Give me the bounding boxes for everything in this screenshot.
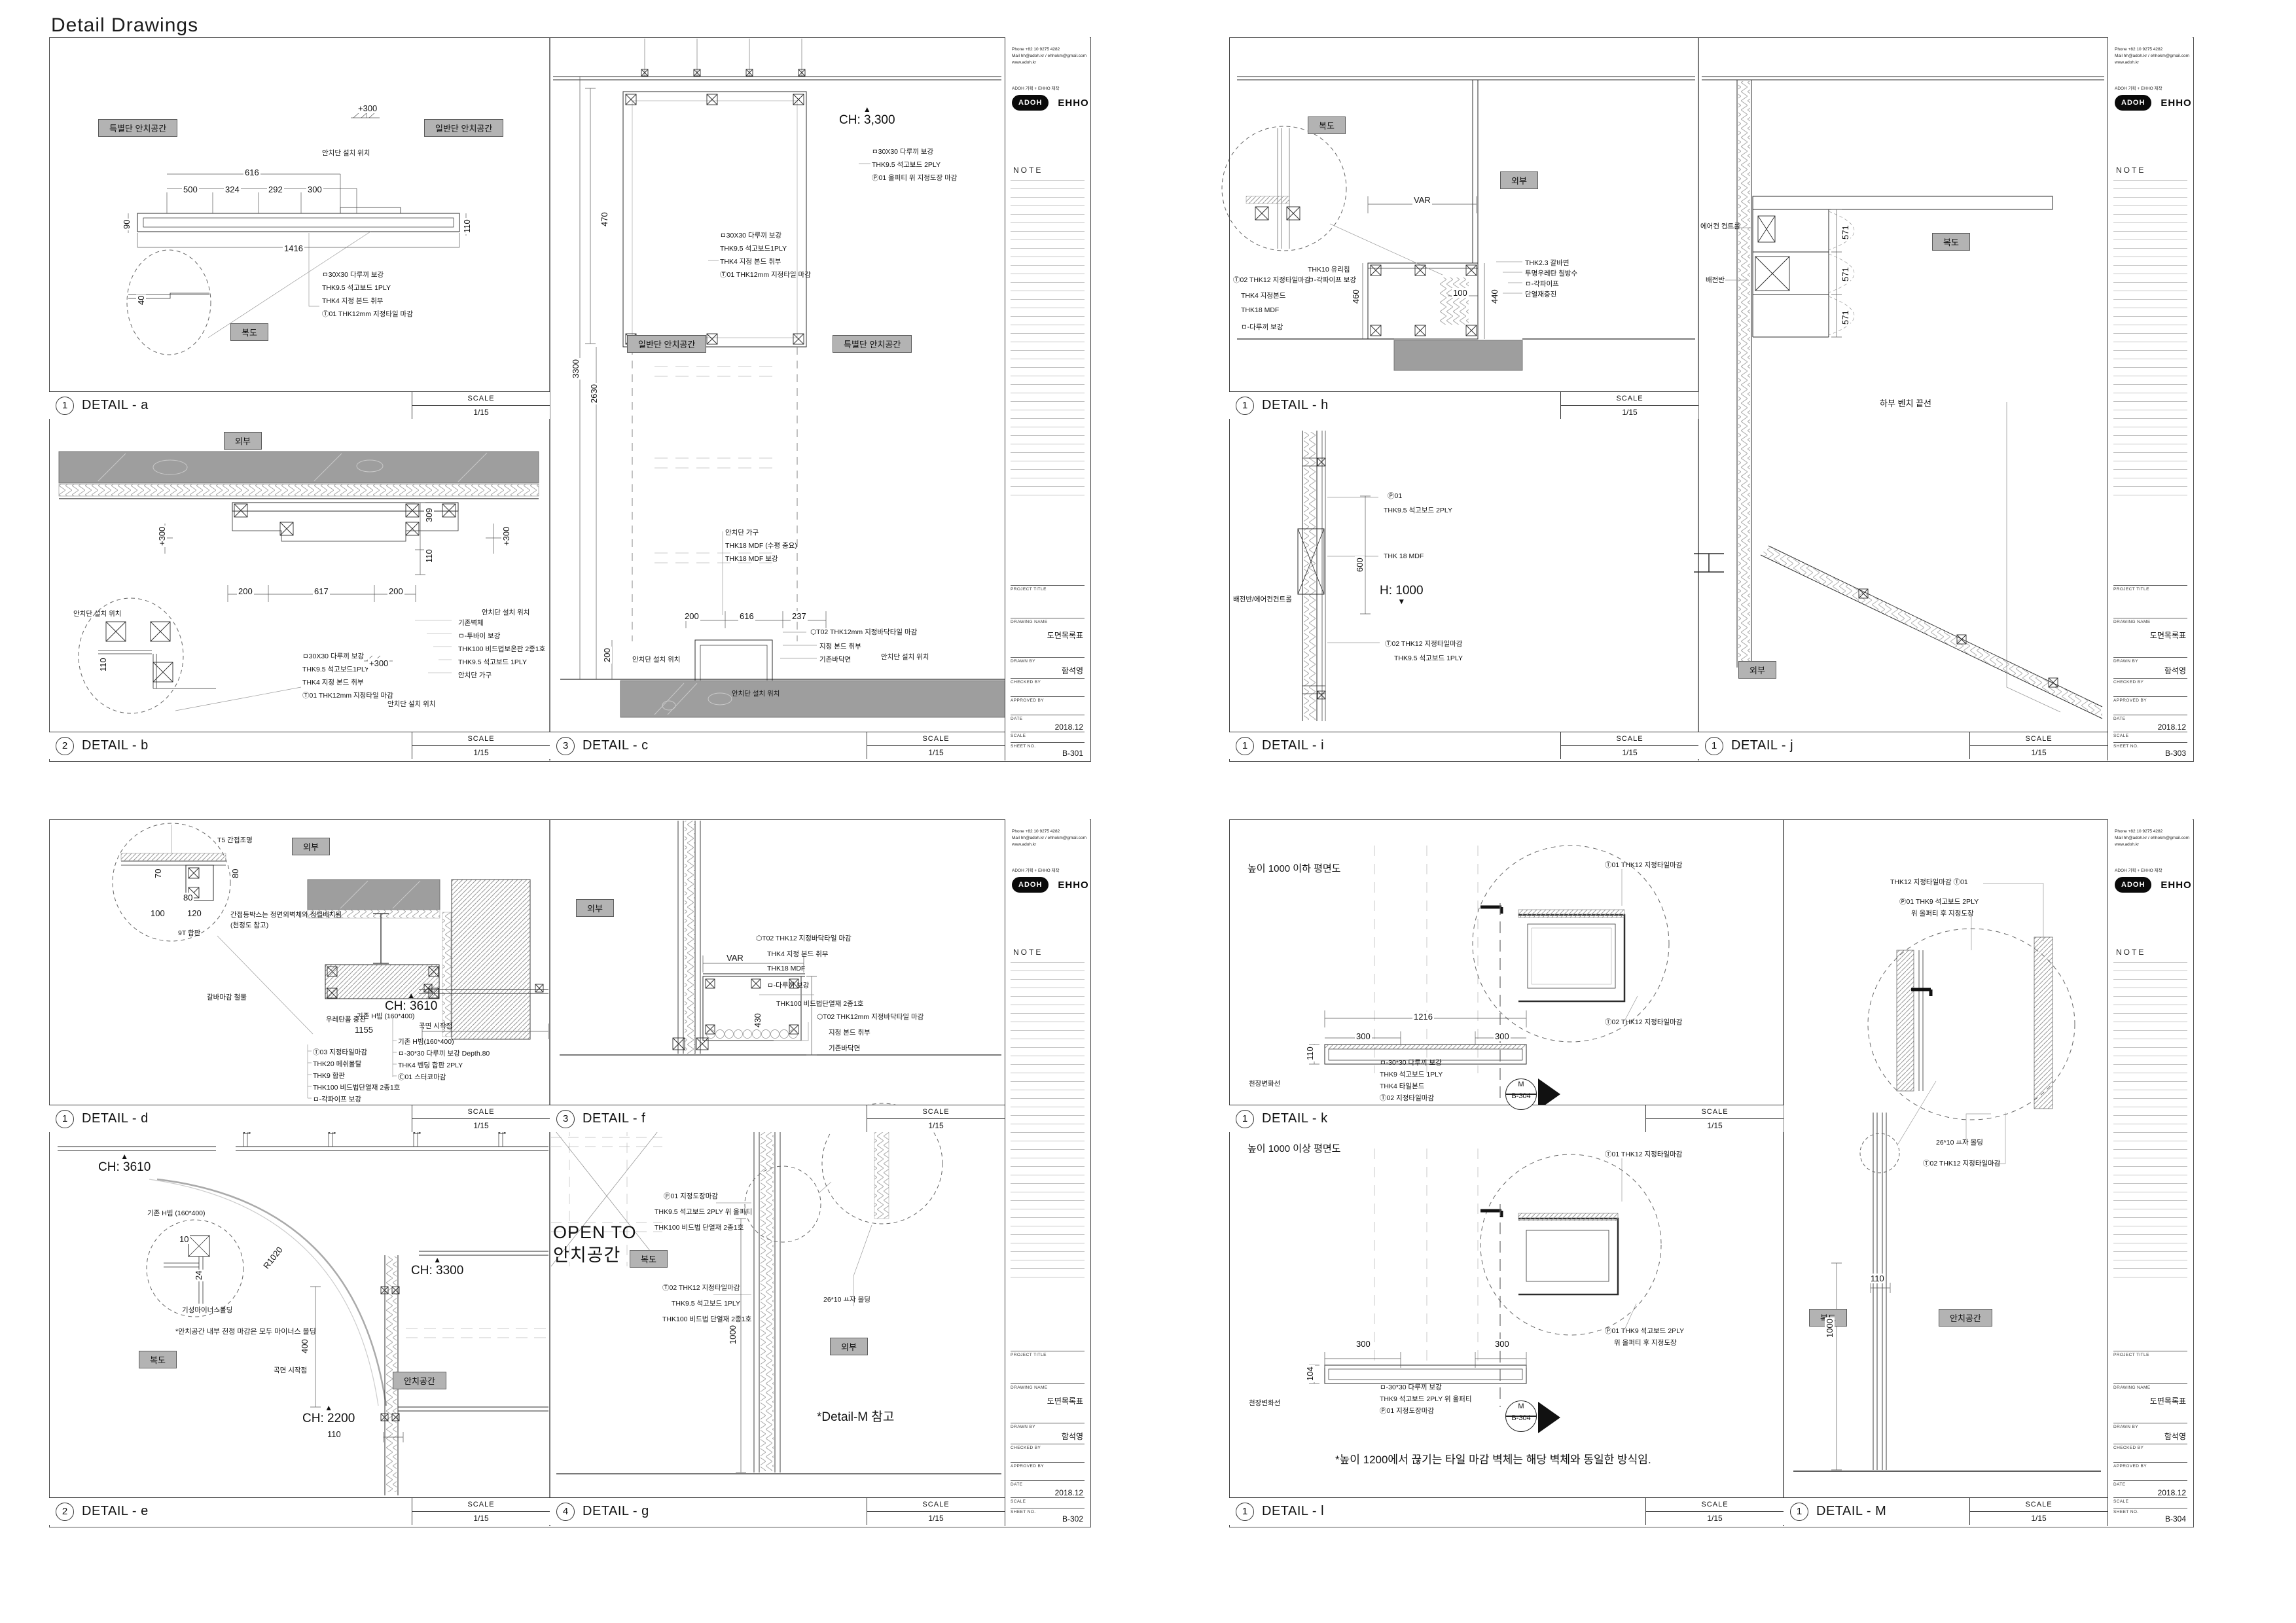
note-rule-line — [2113, 265, 2187, 266]
note-rule-line — [1011, 1217, 1085, 1218]
note-rule-line — [2113, 401, 2187, 402]
scale-label: SCALE — [867, 1498, 1005, 1512]
annotation-dim: 292 — [267, 185, 284, 194]
scale-label: SCALE — [1561, 732, 1698, 746]
annotation-call: ㅁ-각파이프 보강 — [1308, 275, 1356, 285]
detail-scale-box: SCALE1/15 — [412, 732, 550, 759]
annotation-call: Ⓣ02 THK12 지정타일마감 — [1605, 1017, 1682, 1027]
annotation-vdim: 460 — [1351, 288, 1361, 305]
tb-label-sheet_no: SHEET NO. — [2113, 1508, 2187, 1514]
note-rule-line — [1011, 197, 1085, 198]
annotation-ch: CH: 3300 — [411, 1257, 463, 1278]
annotation-call: ⬡T02 THK12 지정바닥타일 마감 — [756, 933, 852, 943]
annotation-chip: 외부 — [1738, 661, 1776, 679]
annotation-call: THK100 비드법 단열재 2종1호 — [655, 1222, 744, 1232]
annotation-chip: 특별단 안치공간 — [98, 119, 177, 137]
note-rule-line — [2113, 214, 2187, 215]
note-rule-line — [1011, 333, 1085, 334]
annotation-call: THK18 MDF — [767, 965, 805, 972]
scale-label: SCALE — [412, 392, 550, 406]
adoh-logo: ADOH — [1012, 877, 1049, 893]
note-rule-line — [2113, 350, 2187, 351]
scale-label: SCALE — [1646, 1498, 1784, 1512]
annotation-call: THK9 합판 — [313, 1071, 345, 1080]
scale-label: SCALE — [412, 732, 550, 746]
note-rule-line — [1011, 962, 1085, 963]
annotation-call: Ⓣ03 지정타일마감 — [313, 1047, 367, 1057]
annotation-vdim: 2630 — [589, 383, 599, 404]
note-rule-line — [1011, 1081, 1085, 1082]
scale-value: 1/15 — [1646, 1119, 1784, 1132]
annotation-dim: 616 — [243, 168, 260, 177]
annotation-call: THK18 MDF — [1241, 306, 1279, 314]
note-rule-line — [2113, 376, 2187, 376]
company-web: www.adoh.kr — [2115, 842, 2189, 848]
tb-label-checked_by: CHECKED BY — [2113, 1444, 2187, 1450]
note-rule-line — [1011, 1090, 1085, 1090]
annotation-call: ㅁ30X30 다루끼 보강 — [872, 147, 933, 156]
tb-value-date: 2018.12 — [1055, 1488, 1083, 1497]
annotation-chip: 복도 — [139, 1351, 177, 1368]
note-rule-line — [1011, 461, 1085, 461]
title-block-B-302: Phone +82 10 9275 4282Mail hh@adoh.kr / … — [1005, 819, 1090, 1526]
annotation-dim: VAR — [725, 953, 745, 963]
tb-value-date: 2018.12 — [1055, 722, 1083, 732]
annotation-vdim: 571 — [1840, 309, 1850, 326]
company-contact: Phone +82 10 9275 4282Mail hh@adoh.kr / … — [1012, 46, 1086, 66]
detail-name: DETAIL - j — [1731, 738, 1793, 753]
detail-title-bar: 1DETAIL - MSCALE1/15 — [1784, 1497, 2108, 1525]
annotation-dim: 200 — [237, 586, 254, 596]
annotation-vdim: 400 — [300, 1338, 310, 1355]
note-rule-line — [1011, 188, 1085, 189]
annotation-ch: CH: 3,300 — [839, 106, 895, 128]
note-rule-line — [1011, 401, 1085, 402]
annotation-call: ㅁ-각파이프 보강 — [313, 1094, 361, 1104]
note-rule-line — [1011, 282, 1085, 283]
note-rule-line — [2113, 393, 2187, 393]
note-rule-line — [2113, 410, 2187, 410]
annotation-note: *높이 1200에서 끊기는 타일 마감 벽체는 해당 벽체와 동일한 방식임. — [1335, 1450, 1651, 1467]
annotation-call: 안치단 설치 위치 — [322, 148, 370, 158]
annotation-call: Ⓣ02 THK12 지정타일마감 — [662, 1283, 740, 1293]
tb-value-drawn_by: 함석영 — [1062, 665, 1083, 676]
annotation-call: 안치단 설치 위치 — [881, 652, 929, 662]
note-rule-line — [2113, 1081, 2187, 1082]
note-rule-line — [2113, 1234, 2187, 1235]
note-rule-line — [1011, 1192, 1085, 1192]
annotation-call: ㅁ30X30 다루끼 보강 — [302, 651, 364, 661]
note-rule-line — [1011, 1030, 1085, 1031]
note-rule-line — [1011, 325, 1085, 325]
note-rule-line — [1011, 1022, 1085, 1022]
annotation-call: Ⓟ01 THK9 석고보드 2PLY — [1899, 897, 1979, 906]
detail-title-bar: 2DETAIL - bSCALE1/15 — [49, 732, 550, 759]
scale-value: 1/15 — [1970, 746, 2108, 759]
annotation-vdim: 1000 — [1825, 1317, 1835, 1339]
note-rule-line — [2113, 1149, 2187, 1150]
annotation-dim: 300 — [1494, 1031, 1511, 1041]
note-rule-line — [1011, 452, 1085, 453]
scale-label: SCALE — [1970, 1498, 2108, 1512]
company-partnership: ADOH 기획 + EHHO 제작 — [2115, 866, 2162, 873]
sheet-frame-B-302 — [49, 819, 1091, 1527]
company-web: www.adoh.kr — [1012, 842, 1086, 848]
note-rule-line — [1011, 1183, 1085, 1184]
annotation-vdim: 110 — [424, 548, 434, 564]
note-rule-line — [1011, 1115, 1085, 1116]
note-rule-line — [2113, 1243, 2187, 1243]
annotation-call: Ⓣ02 지정타일마감 — [1380, 1093, 1434, 1103]
annotation-vdim: 104 — [1305, 1365, 1315, 1382]
annotation-vdim: +300 — [157, 526, 167, 547]
note-rule-line — [1011, 274, 1085, 274]
annotation-vdim: 309 — [424, 507, 434, 524]
note-rule-line — [1011, 342, 1085, 342]
annotation-chip: 복도 — [1308, 116, 1346, 134]
detail-number: 2 — [56, 1503, 74, 1521]
annotation-call: 기성마이너스몰딩 — [182, 1305, 232, 1315]
annotation-call: ㅁ-투바이 보강 — [458, 631, 500, 641]
note-rule-line — [1011, 1251, 1085, 1252]
tb-label-project_title: PROJECT TITLE — [2113, 585, 2187, 592]
note-rule-line — [2113, 1056, 2187, 1056]
note-rule-line — [1011, 469, 1085, 470]
tb-value-sheet_no: B-302 — [1062, 1514, 1083, 1524]
annotation-note: 높이 1000 이하 평면도 — [1247, 861, 1340, 875]
annotation-vdim: 571 — [1840, 224, 1850, 241]
annotation-call: THK100 비드법보온판 2종1호 — [458, 644, 545, 654]
annotation-note: *Detail-M 참고 — [817, 1407, 894, 1425]
note-rule-line — [2113, 435, 2187, 436]
note-rule-line — [2113, 962, 2187, 963]
note-rule-line — [1011, 257, 1085, 257]
note-rule-line — [1011, 418, 1085, 419]
annotation-dim: 1416 — [283, 243, 304, 253]
annotation-dim: 120 — [186, 908, 203, 918]
scale-label: SCALE — [1561, 392, 1698, 406]
tb-label-drawn_by: DRAWN BY — [1011, 657, 1085, 664]
note-heading: NOTE — [2116, 948, 2145, 957]
detail-number: 3 — [556, 1110, 575, 1128]
annotation-call: THK4 타일본드 — [1380, 1081, 1424, 1091]
note-rule-line — [1011, 979, 1085, 980]
note-rule-line — [2113, 180, 2187, 181]
detail-name: DETAIL - f — [583, 1111, 645, 1126]
tb-value-sheet_no: B-304 — [2165, 1514, 2186, 1524]
detail-number: 4 — [556, 1503, 575, 1521]
note-rule-line — [2113, 1183, 2187, 1184]
detail-name: DETAIL - a — [82, 398, 149, 413]
note-rule-line — [2113, 1217, 2187, 1218]
annotation-ch: CH: 3610 — [98, 1153, 151, 1175]
annotation-call: Ⓣ02 THK12 지정타일마감 — [1233, 275, 1310, 285]
note-rule-line — [1011, 1039, 1085, 1039]
tb-value-drawn_by: 함석영 — [1062, 1431, 1083, 1442]
detail-number: 1 — [1790, 1503, 1808, 1521]
note-rule-line — [2113, 1175, 2187, 1175]
detail-title-bar: 3DETAIL - fSCALE1/15 — [550, 1105, 1005, 1132]
note-rule-line — [1011, 1124, 1085, 1124]
note-heading: NOTE — [1013, 166, 1043, 175]
note-rule-line — [1011, 359, 1085, 359]
scale-value: 1/15 — [412, 1512, 550, 1525]
annotation-call: THK9.5 석고보드 2PLY — [1384, 505, 1452, 515]
detail-scale-box: SCALE1/15 — [867, 1105, 1005, 1132]
note-heading: NOTE — [1013, 948, 1043, 957]
note-rule-line — [1011, 486, 1085, 487]
detail-number: 1 — [1236, 1110, 1254, 1128]
note-rule-line — [1011, 1158, 1085, 1158]
annotation-call: 배전반 — [1706, 275, 1725, 285]
note-rule-line — [2113, 240, 2187, 240]
annotation-dim: 200 — [387, 586, 404, 596]
annotation-call: ㅁ-각파이프 — [1525, 279, 1559, 289]
annotation-dim: 1216 — [1412, 1012, 1434, 1022]
note-rule-line — [1011, 214, 1085, 215]
detail-name: DETAIL - b — [82, 738, 149, 753]
annotation-call: 기존바닥면 — [829, 1043, 860, 1053]
annotation-call: 천장변화선 — [1249, 1398, 1280, 1408]
note-rule-line — [1011, 384, 1085, 385]
annotation-call: Ⓣ02 THK12 지정타일마감 — [1923, 1158, 2000, 1168]
detail-title-bar: 1DETAIL - hSCALE1/15 — [1229, 391, 1698, 419]
note-rule-line — [2113, 359, 2187, 359]
tb-label-scale: SCALE — [2113, 732, 2187, 738]
detail-title-bar: 1DETAIL - dSCALE1/15 — [49, 1105, 550, 1132]
annotation-vdim: 40 — [136, 294, 146, 306]
note-rule-line — [2113, 427, 2187, 427]
note-rule-line — [1011, 410, 1085, 410]
annotation-call: THK4 지정 본드 취부 — [767, 949, 829, 959]
annotation-call: 기존 H빔(160*400) — [398, 1037, 454, 1046]
annotation-call: Ⓟ01 올퍼티 위 지정도장 마감 — [872, 173, 957, 183]
annotation-dim: 300 — [1355, 1031, 1372, 1041]
tb-label-checked_by: CHECKED BY — [2113, 678, 2187, 685]
note-rule-line — [1011, 1268, 1085, 1269]
annotation-call: THK4 지정본드 — [1241, 291, 1285, 300]
note-rule-line — [1011, 435, 1085, 436]
scale-label: SCALE — [412, 1105, 550, 1119]
annotation-call: ㅁ-다루끼 보강 — [1241, 322, 1283, 332]
annotation-dim: 100 — [149, 908, 166, 918]
company-mail: Mail hh@adoh.kr / ehhokm@gmail.com — [2115, 835, 2189, 842]
note-rule-line — [1011, 1226, 1085, 1226]
note-rule-line — [2113, 1039, 2187, 1039]
annotation-call: ⬡T02 THK12mm 지정바닥타일 마감 — [817, 1012, 924, 1022]
annotation-call: 안치단 설치 위치 — [73, 609, 121, 618]
tb-label-project_title: PROJECT TITLE — [1011, 1351, 1085, 1357]
annotation-vdim: 440 — [1490, 288, 1499, 305]
annotation-call: Ⓣ01 THK12mm 지정타일 마감 — [720, 270, 811, 279]
annotation-chip: 복도 — [230, 323, 268, 341]
detail-scale-box: SCALE1/15 — [412, 1498, 550, 1525]
annotation-ch: CH: 2200 — [302, 1404, 355, 1426]
detail-title-bar: 1DETAIL - jSCALE1/15 — [1698, 732, 2108, 759]
scale-label: SCALE — [412, 1498, 550, 1512]
tb-label-scale: SCALE — [1011, 732, 1085, 738]
detail-name: DETAIL - d — [82, 1111, 149, 1126]
detail-scale-box: SCALE1/15 — [867, 1498, 1005, 1525]
tb-label-checked_by: CHECKED BY — [1011, 678, 1085, 685]
note-rule-line — [2113, 1107, 2187, 1107]
company-mail: Mail hh@adoh.kr / ehhokm@gmail.com — [1012, 835, 1086, 842]
annotation-call: THK9.5 석고보드 1PLY — [458, 657, 527, 667]
tb-value-drawing_name: 도면목록표 — [2150, 630, 2186, 641]
tb-value-drawing_name: 도면목록표 — [1047, 1395, 1083, 1406]
detail-number: 2 — [56, 737, 74, 755]
tb-label-drawing_name: DRAWING NAME — [2113, 618, 2187, 624]
note-rule-line — [1011, 1166, 1085, 1167]
annotation-call: Ⓟ01 THK9 석고보드 2PLY — [1605, 1326, 1684, 1336]
note-rule-line — [1011, 308, 1085, 308]
tb-value-sheet_no: B-301 — [1062, 749, 1083, 758]
detail-number: 1 — [56, 1110, 74, 1128]
note-rule-line — [1011, 1209, 1085, 1209]
tb-value-sheet_no: B-303 — [2165, 749, 2186, 758]
detail-name: DETAIL - i — [1262, 738, 1324, 753]
annotation-dim: 110 — [1869, 1274, 1886, 1283]
annotation-call: THK4 지정 본드 취부 — [322, 296, 384, 306]
note-rule-line — [2113, 231, 2187, 232]
annotation-call: Ⓟ01 지정도장마감 — [664, 1191, 718, 1201]
note-rule-line — [2113, 1030, 2187, 1031]
note-rule-line — [1011, 223, 1085, 223]
note-heading: NOTE — [2116, 166, 2145, 175]
note-rule-line — [1011, 1013, 1085, 1014]
tb-label-date: DATE — [1011, 715, 1085, 721]
annotation-vdim: 110 — [98, 656, 108, 673]
adoh-logo: ADOH — [2115, 95, 2151, 111]
annotation-chip: 복도 — [630, 1250, 668, 1268]
note-rule-line — [2113, 282, 2187, 283]
annotation-call: THK9 석고보드 2PLY 위 올퍼티 — [1380, 1394, 1472, 1404]
tb-value-date: 2018.12 — [2158, 722, 2186, 732]
annotation-vdim: 3300 — [571, 358, 581, 380]
note-rule-line — [2113, 1268, 2187, 1269]
company-phone: Phone +82 10 9275 4282 — [1012, 829, 1086, 835]
note-rule-line — [2113, 418, 2187, 419]
annotation-call: Ⓒ01 스터코마감 — [398, 1072, 446, 1082]
note-rule-line — [2113, 461, 2187, 461]
note-rule-line — [2113, 197, 2187, 198]
note-rule-line — [2113, 333, 2187, 334]
annotation-dim: 200 — [683, 611, 700, 621]
annotation-call: 하부 벤치 끝선 — [1880, 397, 1931, 409]
annotation-chip: 복도 — [1932, 233, 1970, 251]
tb-label-project_title: PROJECT TITLE — [1011, 585, 1085, 592]
ehho-logo: EHHO — [1058, 880, 1088, 891]
annotation-dim: 110 — [326, 1429, 342, 1439]
tb-label-project_title: PROJECT TITLE — [2113, 1351, 2187, 1357]
detail-scale-box: SCALE1/15 — [1645, 1498, 1784, 1525]
company-contact: Phone +82 10 9275 4282Mail hh@adoh.kr / … — [1012, 829, 1086, 848]
scale-value: 1/15 — [867, 746, 1005, 759]
annotation-call: 지정 본드 취부 — [819, 641, 861, 651]
tb-label-sheet_no: SHEET NO. — [2113, 742, 2187, 749]
annotation-dim: +300 — [357, 103, 378, 113]
sheet-frame-B-304 — [1229, 819, 2194, 1527]
annotation-call: 배전반/에어컨컨트롤 — [1233, 594, 1292, 604]
note-rule-line — [2113, 299, 2187, 300]
note-rule-line — [2113, 291, 2187, 291]
note-rule-line — [1011, 1073, 1085, 1073]
tb-value-drawing_name: 도면목록표 — [1047, 630, 1083, 641]
annotation-call: 천장변화선 — [1249, 1079, 1280, 1088]
scale-label: SCALE — [1970, 732, 2108, 746]
annotation-dim: VAR — [1412, 195, 1432, 205]
note-rule-line — [1011, 1141, 1085, 1141]
annotation-call: Ⓣ01 THK12 지정타일마감 — [1605, 860, 1682, 870]
annotation-dim: 1155 — [353, 1025, 374, 1035]
annotation-chip: 외부 — [576, 899, 614, 917]
annotation-call: ㅁ-30*30 다루끼 보강 — [1380, 1058, 1442, 1067]
note-rule-line — [2113, 1047, 2187, 1048]
note-rule-line — [2113, 478, 2187, 478]
company-mail: Mail hh@adoh.kr / ehhokm@gmail.com — [2115, 53, 2189, 60]
annotation-call: 기존 H빔 (160*400) — [357, 1011, 415, 1021]
annotation-dim: 80 — [182, 893, 194, 902]
detail-name: DETAIL - c — [583, 738, 649, 753]
annotation-dim: 300 — [306, 185, 323, 194]
company-logos: ADOHEHHO — [1012, 877, 1089, 893]
note-rule-line — [2113, 1124, 2187, 1124]
annotation-call: THK9.5 석고보드 1PLY — [1394, 653, 1463, 663]
annotation-call: 안치단 설치 위치 — [732, 688, 780, 698]
note-rule-line — [1011, 1098, 1085, 1099]
annotation-call: THK18 MDF 보강 — [725, 554, 778, 563]
annotation-call: 안치단 설치 위치 — [387, 699, 435, 709]
annotation-call: THK9 석고보드 1PLY — [1380, 1069, 1443, 1079]
annotation-vdim: 1000 — [728, 1324, 738, 1346]
tb-label-scale: SCALE — [2113, 1497, 2187, 1504]
note-rule-line — [2113, 1005, 2187, 1005]
scale-value: 1/15 — [1561, 406, 1698, 419]
company-partnership: ADOH 기획 + EHHO 제작 — [1012, 84, 1060, 91]
detail-title-bar: 3DETAIL - cSCALE1/15 — [550, 732, 1005, 759]
annotation-vdim: 200 — [602, 647, 612, 664]
note-rule-line — [1011, 316, 1085, 317]
note-rule-line — [1011, 240, 1085, 240]
note-rule-line — [1011, 971, 1085, 971]
annotation-call: 투명우레탄 칠방수 — [1525, 268, 1577, 278]
page-title: Detail Drawings — [51, 14, 198, 37]
note-rule-line — [2113, 1022, 2187, 1022]
annotation-call: 곡면 시작점 — [274, 1365, 307, 1375]
note-rule-line — [1011, 478, 1085, 478]
note-rule-line — [1011, 988, 1085, 988]
detail-name: DETAIL - h — [1262, 398, 1329, 413]
detail-scale-box: SCALE1/15 — [412, 392, 550, 419]
annotation-mref: M B-304 — [1505, 1400, 1537, 1432]
note-rule-line — [2113, 1200, 2187, 1201]
company-web: www.adoh.kr — [2115, 60, 2189, 66]
annotation-call: 기존바닥면 — [819, 654, 851, 664]
ehho-logo: EHHO — [2161, 880, 2191, 891]
detail-number: 1 — [1236, 1503, 1254, 1521]
detail-number: 3 — [556, 737, 575, 755]
note-rule-line — [2113, 486, 2187, 487]
detail-scale-box: SCALE1/15 — [867, 732, 1005, 759]
annotation-dim: 616 — [738, 611, 755, 621]
annotation-call: 곡면 시작점 — [419, 1021, 452, 1031]
note-rule-line — [2113, 384, 2187, 385]
note-rule-line — [2113, 1209, 2187, 1209]
tb-label-drawn_by: DRAWN BY — [2113, 657, 2187, 664]
note-rule-line — [2113, 223, 2187, 223]
tb-label-approved_by: APPROVED BY — [2113, 1462, 2187, 1469]
scale-value: 1/15 — [412, 746, 550, 759]
